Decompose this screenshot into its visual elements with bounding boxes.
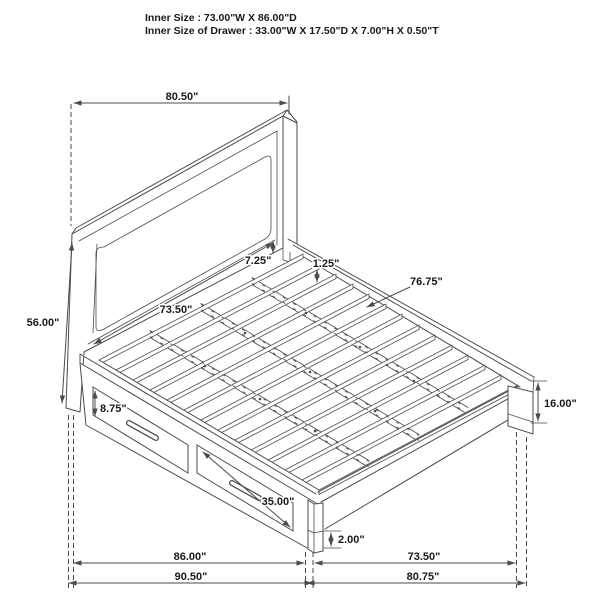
dim-headboard-width: 80.50" bbox=[74, 91, 287, 103]
dim-inner-depth: 86.00" bbox=[74, 551, 304, 563]
dim-headboard-height: 56.00" bbox=[27, 243, 72, 403]
dim-inner-depth-label: 86.00" bbox=[174, 551, 207, 563]
dim-panel-to-slat-gap-label: 7.25" bbox=[245, 255, 272, 267]
footboard-fill bbox=[321, 391, 516, 531]
dim-drawer-face-height-label: 8.75" bbox=[100, 403, 127, 415]
dim-foot-leg-height-label: 2.00" bbox=[338, 534, 365, 546]
headboard-post-base bbox=[283, 248, 290, 262]
fastener-dot bbox=[305, 312, 308, 315]
dim-footboard-height-label: 16.00" bbox=[544, 398, 577, 410]
dim-drawer-width-label: 35.00" bbox=[262, 496, 295, 508]
dim-headboard-width-label: 80.50" bbox=[166, 91, 199, 103]
dim-overall-depth-label: 90.50" bbox=[175, 571, 208, 583]
fastener-dot bbox=[309, 371, 312, 374]
dim-footboard-height: 16.00" bbox=[531, 381, 577, 423]
dim-inner-width-label: 73.50" bbox=[408, 551, 441, 563]
fastener-dot bbox=[204, 365, 207, 368]
front-corner-post bbox=[308, 500, 323, 553]
dim-overall-depth: 90.50" bbox=[69, 571, 312, 583]
dim-slat-platform-length-label: 76.75" bbox=[410, 276, 443, 288]
drawer-inner-size-note: Inner Size of Drawer : 33.00"W X 17.50"D… bbox=[145, 25, 439, 37]
dim-overall-width-label: 80.75" bbox=[407, 571, 440, 583]
fastener-dot bbox=[244, 332, 247, 335]
right-corner-post bbox=[508, 386, 533, 434]
bed-diagram-canvas: 80.50" 56.00" 73.50" 7.25" 1.25" 76.75" … bbox=[0, 0, 600, 600]
inner-size-note: Inner Size : 73.00"W X 86.00"D bbox=[145, 12, 297, 24]
dim-overall-width: 80.75" bbox=[307, 571, 525, 583]
dim-slat-thickness-label: 1.25" bbox=[313, 258, 340, 270]
dim-foot-leg-height: 2.00" bbox=[324, 531, 365, 548]
fastener-dot bbox=[314, 430, 317, 433]
fastener-dot bbox=[413, 380, 416, 383]
dim-headboard-height-label: 56.00" bbox=[27, 317, 60, 329]
dim-inner-width: 73.50" bbox=[315, 551, 515, 563]
fastener-dot bbox=[259, 398, 262, 401]
header-notes: Inner Size : 73.00"W X 86.00"D Inner Siz… bbox=[145, 12, 439, 37]
fastener-dot bbox=[359, 346, 362, 349]
dim-headboard-panel-width-label: 73.50" bbox=[160, 304, 193, 316]
fastener-dot bbox=[374, 410, 377, 413]
bed-dimension-diagram: 80.50" 56.00" 73.50" 7.25" 1.25" 76.75" … bbox=[0, 0, 600, 600]
